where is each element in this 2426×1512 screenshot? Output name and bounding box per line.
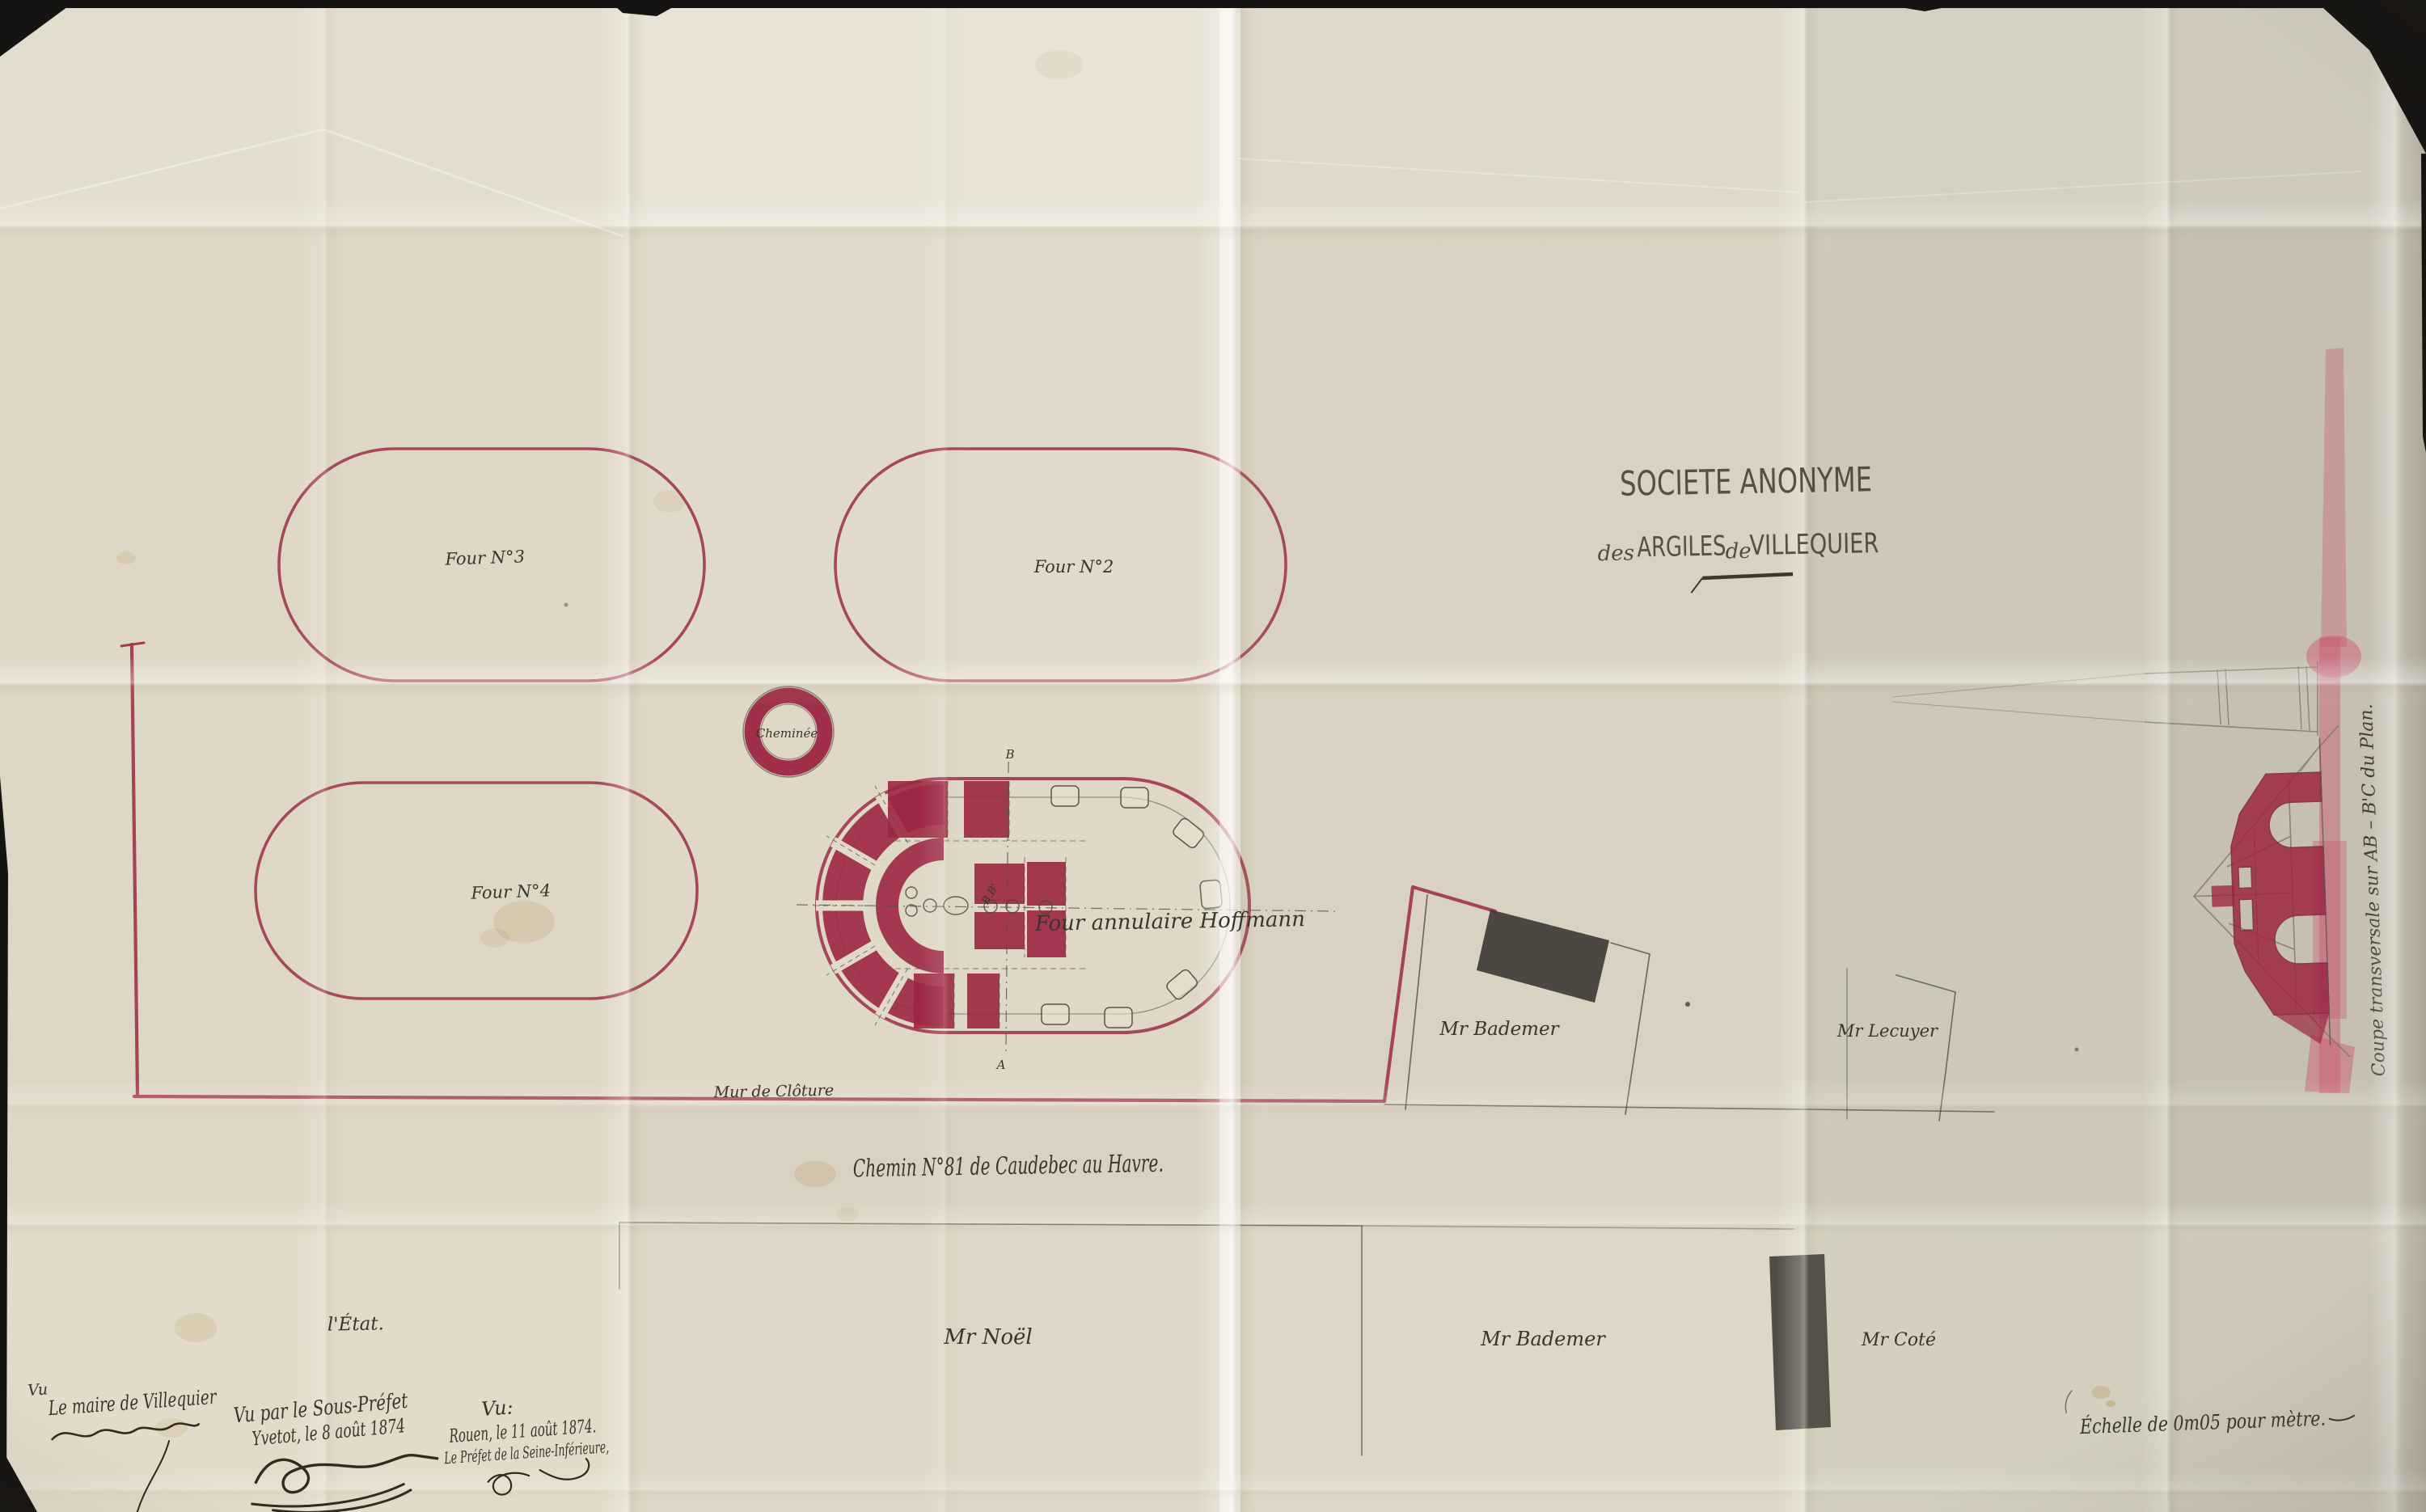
photographed-plan: Coupe transversale sur AB – B'C du Plan.… bbox=[0, 0, 2426, 1512]
plan-drawing: Coupe transversale sur AB – B'C du Plan.… bbox=[0, 0, 2426, 1512]
photo-vignette bbox=[0, 0, 2426, 1512]
